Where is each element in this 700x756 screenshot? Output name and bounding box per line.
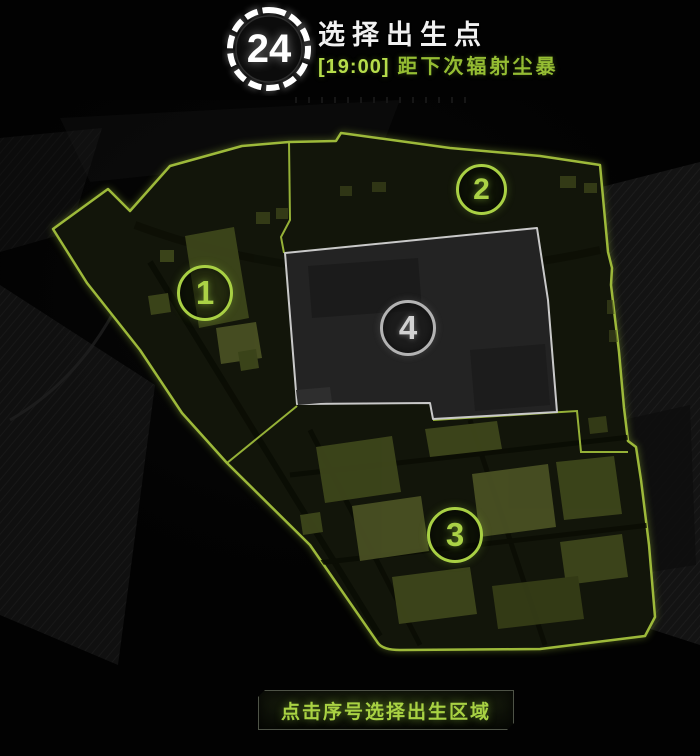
spawn-zone-marker-2[interactable]: 2 — [456, 164, 507, 215]
spawn-zone-2-number: 2 — [473, 173, 490, 207]
hint-label: 点击序号选择出生区域 — [281, 697, 491, 724]
page-title: 选择出生点 — [318, 13, 488, 52]
faint-ticks-decoration — [295, 97, 473, 103]
spawn-zone-marker-3[interactable]: 3 — [427, 507, 483, 563]
spawn-select-screen: 24 选择出生点 [19:00]距下次辐射尘暴 1 2 3 4 点击序号选择出生… — [0, 0, 700, 756]
spawn-zone-4-number: 4 — [399, 309, 417, 347]
countdown-seconds: 24 — [222, 2, 316, 96]
spawn-zone-1-number: 1 — [196, 274, 214, 312]
storm-countdown-time: [19:00] — [318, 56, 389, 78]
hint-bar: 点击序号选择出生区域 — [258, 690, 514, 730]
spawn-zone-3-number: 3 — [446, 516, 464, 554]
header: 24 选择出生点 [19:00]距下次辐射尘暴 — [0, 0, 700, 120]
spawn-zone-marker-1[interactable]: 1 — [177, 265, 233, 321]
storm-countdown-label: 距下次辐射尘暴 — [397, 56, 558, 78]
spawn-zone-marker-4[interactable]: 4 — [380, 300, 436, 356]
storm-countdown: [19:00]距下次辐射尘暴 — [318, 50, 558, 79]
countdown-timer: 24 — [222, 2, 316, 96]
